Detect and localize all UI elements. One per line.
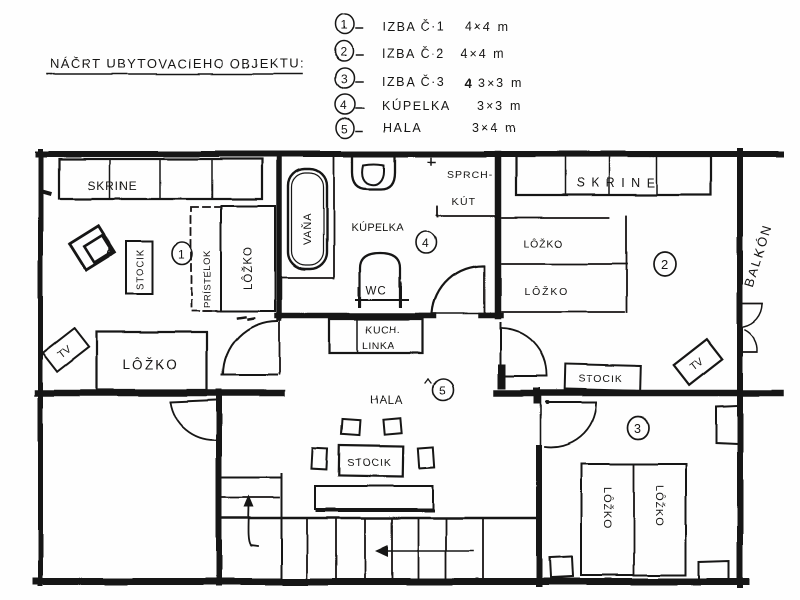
svg-text:SKRINE: SKRINE xyxy=(88,179,137,193)
svg-text:KÚPELKA: KÚPELKA xyxy=(382,98,450,113)
svg-text:KÚPELKA: KÚPELKA xyxy=(351,221,404,234)
svg-text:3×3 m: 3×3 m xyxy=(478,76,524,90)
svg-text:5: 5 xyxy=(341,122,348,136)
svg-text:4: 4 xyxy=(422,237,429,251)
svg-text:IZBA Č·1: IZBA Č·1 xyxy=(383,19,446,34)
svg-text:1: 1 xyxy=(178,247,185,261)
svg-text:HALA: HALA xyxy=(383,121,422,135)
svg-text:LÔŽKO: LÔŽKO xyxy=(524,237,564,250)
svg-text:1: 1 xyxy=(341,18,348,32)
svg-text:VAŇA: VAŇA xyxy=(301,212,314,245)
svg-text:4×4 m: 4×4 m xyxy=(465,20,510,34)
svg-text:SPRCH-: SPRCH- xyxy=(447,169,493,181)
svg-text:LÔŽKO: LÔŽKO xyxy=(123,357,179,372)
svg-text:IZBA Č·3: IZBA Č·3 xyxy=(382,74,445,89)
svg-text:IZBA Č·2: IZBA Č·2 xyxy=(382,46,445,61)
svg-text:LÔŽKO: LÔŽKO xyxy=(242,246,255,290)
svg-text:2: 2 xyxy=(661,257,668,272)
svg-text:STOCIK: STOCIK xyxy=(578,373,623,385)
svg-text:3×4 m: 3×4 m xyxy=(472,121,518,135)
svg-text:STOCIK: STOCIK xyxy=(347,457,392,469)
svg-text:3×3 m: 3×3 m xyxy=(477,99,523,113)
svg-text:WC: WC xyxy=(366,285,387,297)
svg-text:4×4 m: 4×4 m xyxy=(461,47,506,61)
svg-text:4: 4 xyxy=(464,75,473,91)
svg-text:3: 3 xyxy=(341,72,348,86)
svg-text:5: 5 xyxy=(439,384,446,398)
svg-text:LÔŽKO: LÔŽKO xyxy=(601,487,614,529)
svg-text:NÁČRT UBYTOVACIEHO OBJEKTU:: NÁČRT UBYTOVACIEHO OBJEKTU: xyxy=(50,56,305,71)
svg-text:3: 3 xyxy=(634,422,641,436)
svg-text:LÔŽKO: LÔŽKO xyxy=(653,485,666,527)
svg-text:SKRINE: SKRINE xyxy=(576,176,662,190)
svg-text:STOCIK: STOCIK xyxy=(135,249,146,290)
svg-text:HALA: HALA xyxy=(370,395,403,407)
svg-text:KÚT: KÚT xyxy=(452,195,476,208)
svg-text:KUCH.: KUCH. xyxy=(365,324,400,336)
svg-text:LINKA: LINKA xyxy=(362,340,395,352)
svg-text:LÔŽKO: LÔŽKO xyxy=(524,285,569,298)
svg-text:4: 4 xyxy=(340,98,347,112)
svg-text:PRÍSTELOK: PRÍSTELOK xyxy=(202,250,213,308)
svg-text:2: 2 xyxy=(340,45,347,59)
